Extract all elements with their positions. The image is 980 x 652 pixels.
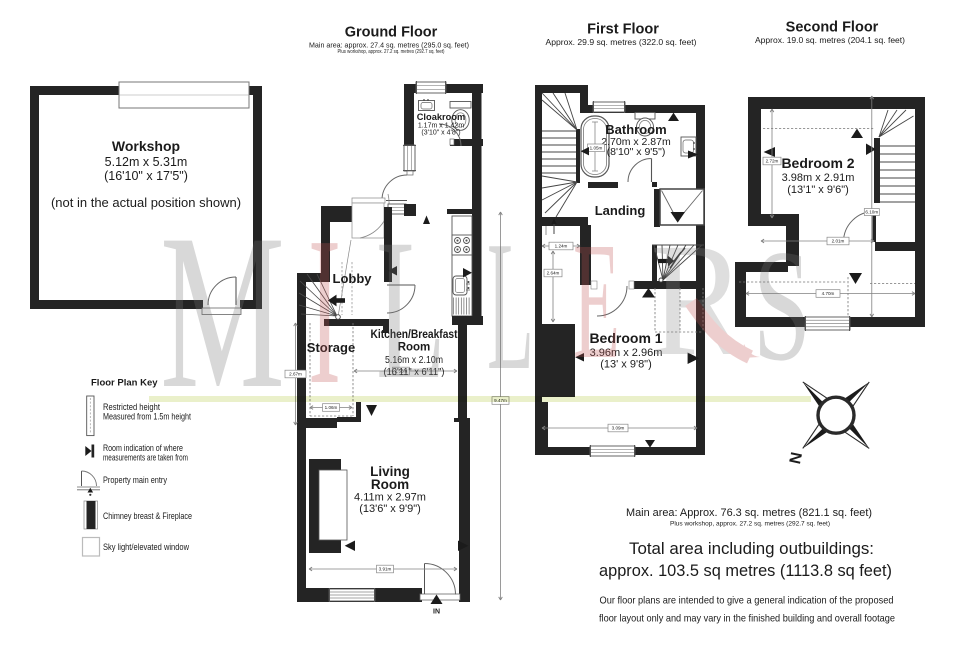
svg-text:3.09m: 3.09m: [612, 426, 625, 431]
svg-text:(13'6" x 9'9"): (13'6" x 9'9"): [359, 503, 421, 515]
svg-text:Our floor plans are intended t: Our floor plans are intended to give a g…: [600, 595, 894, 607]
svg-text:S: S: [753, 216, 811, 394]
svg-text:Main area: Approx. 76.3 sq. me: Main area: Approx. 76.3 sq. metres (821.…: [626, 507, 872, 519]
svg-text:Room: Room: [371, 477, 409, 492]
svg-text:E: E: [573, 208, 620, 394]
svg-text:L: L: [376, 197, 446, 421]
svg-text:4.11m x 2.97m: 4.11m x 2.97m: [354, 492, 426, 504]
svg-text:Sky light/elevated window: Sky light/elevated window: [103, 542, 189, 552]
svg-text:Room indication of where: Room indication of where: [103, 443, 183, 453]
svg-text:5.12m x 5.31m: 5.12m x 5.31m: [105, 155, 188, 169]
svg-text:Chimney breast & Fireplace: Chimney breast & Fireplace: [103, 511, 192, 521]
svg-text:I: I: [308, 193, 341, 428]
svg-text:(13'1" x 9'6"): (13'1" x 9'6"): [787, 184, 849, 196]
svg-text:floor layout only and may vary: floor layout only and may vary in the fi…: [599, 613, 895, 625]
svg-text:Second Floor: Second Floor: [786, 20, 879, 36]
svg-text:1.05m: 1.05m: [590, 146, 603, 151]
svg-text:Restricted height: Restricted height: [103, 402, 160, 412]
svg-text:Bedroom 2: Bedroom 2: [781, 155, 854, 171]
svg-text:Plus workshop, approx. 27.2 sq: Plus workshop, approx. 27.2 sq. metres (…: [338, 49, 445, 55]
svg-text:Approx. 19.0 sq. metres (204.1: Approx. 19.0 sq. metres (204.1 sq. feet): [755, 35, 905, 45]
svg-text:2.64m: 2.64m: [547, 271, 560, 276]
svg-text:2.67m: 2.67m: [289, 372, 302, 377]
svg-text:Approx. 29.9 sq. metres (322.0: Approx. 29.9 sq. metres (322.0 sq. feet): [546, 37, 697, 47]
svg-text:L: L: [487, 203, 534, 409]
svg-text:2.72m: 2.72m: [766, 159, 779, 164]
svg-text:Cloakroom: Cloakroom: [417, 112, 466, 122]
svg-text:approx. 103.5 sq metres (1113.: approx. 103.5 sq metres (1113.8 sq feet): [599, 561, 892, 580]
svg-text:6.10m: 6.10m: [865, 210, 878, 215]
svg-text:4.70m: 4.70m: [822, 291, 835, 296]
svg-text:Bathroom: Bathroom: [605, 122, 666, 137]
svg-text:1.17m x 1.42m: 1.17m x 1.42m: [418, 123, 464, 130]
svg-text:(8'10" x 9'5"): (8'10" x 9'5"): [607, 146, 666, 158]
svg-text:2.01m: 2.01m: [832, 239, 845, 244]
svg-text:3.98m x 2.91m: 3.98m x 2.91m: [782, 172, 855, 184]
svg-text:Property main entry: Property main entry: [103, 475, 167, 485]
svg-text:3.91m: 3.91m: [379, 567, 392, 572]
svg-text:First Floor: First Floor: [587, 22, 659, 38]
svg-text:Ground Floor: Ground Floor: [345, 25, 438, 41]
svg-text:Workshop: Workshop: [112, 138, 180, 154]
svg-text:1.24m: 1.24m: [555, 244, 568, 249]
svg-text:IN: IN: [433, 609, 440, 616]
svg-text:Main area: approx. 27.4 sq. me: Main area: approx. 27.4 sq. metres (295.…: [309, 41, 469, 50]
svg-text:Plus workshop, approx. 27.2 sq: Plus workshop, approx. 27.2 sq. metres (…: [670, 521, 830, 528]
svg-text:Floor Plan Key: Floor Plan Key: [91, 378, 158, 389]
svg-text:(3'10" x 4'8"): (3'10" x 4'8"): [421, 130, 460, 137]
svg-text:measurements are taken from: measurements are taken from: [103, 453, 188, 463]
svg-text:Total area including outbuild: Total area including outbuildings:: [629, 540, 874, 558]
svg-text:M: M: [160, 189, 285, 435]
svg-text:(16'10" x 17'5"): (16'10" x 17'5"): [104, 169, 188, 183]
